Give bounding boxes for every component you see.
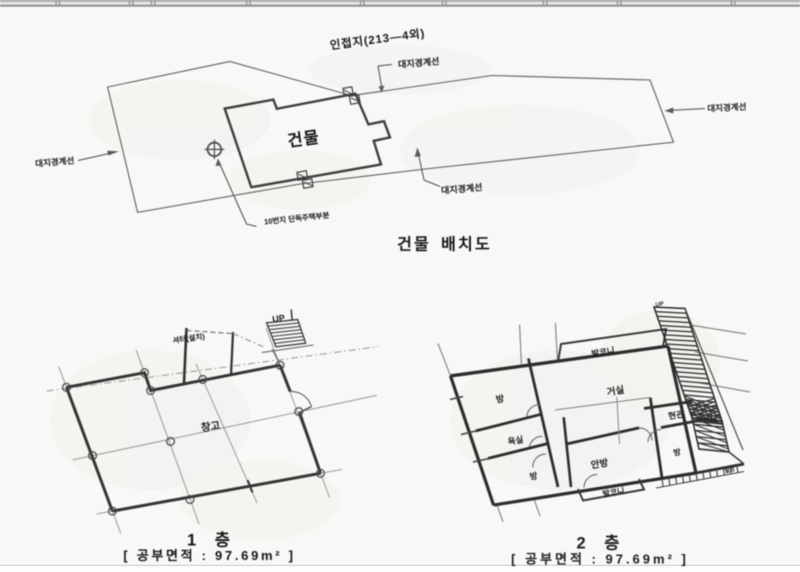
svg-text:건물 배치도: 건물 배치도 (397, 236, 492, 254)
svg-text:창고: 창고 (200, 419, 221, 435)
svg-text:[ 공부면적 : 97.69m² ]: [ 공부면적 : 97.69m² ] (123, 548, 295, 563)
svg-text:UP: UP (272, 313, 286, 325)
svg-text:대지경계선: 대지경계선 (707, 101, 747, 113)
svg-text:1 층: 1 층 (187, 531, 237, 550)
svg-text:2 층: 2 층 (577, 534, 627, 553)
svg-text:[ 공부면적 : 97.69m² ]: [ 공부면적 : 97.69m² ] (511, 552, 689, 567)
